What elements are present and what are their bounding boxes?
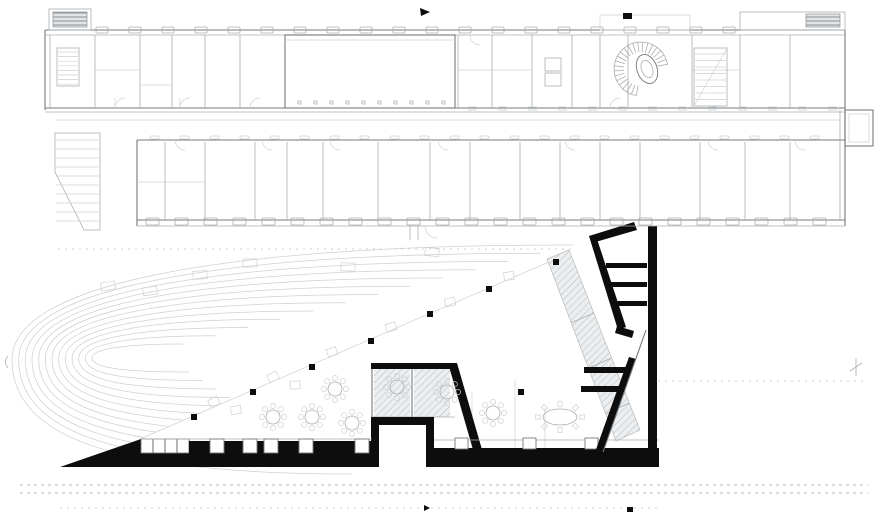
- spiral-tread: [627, 83, 632, 92]
- exterior-stair-outline: [55, 133, 100, 230]
- courtyard-lower-ticks: [390, 136, 399, 139]
- hall-column-tick: [298, 101, 301, 104]
- stair-flight-bar: [606, 263, 647, 268]
- south-facade-windows: [552, 218, 565, 225]
- south-facade-windows: [349, 218, 362, 225]
- hall-column-tick: [346, 101, 349, 104]
- spiral-tread: [631, 85, 635, 94]
- floor-plan-drawing: [0, 0, 882, 526]
- spiral-tread: [657, 59, 666, 63]
- spiral-tread: [624, 48, 630, 56]
- south-facade-windows: [610, 218, 623, 225]
- south-facade-windows: [494, 218, 507, 225]
- centerline-mark-right-icon: [850, 358, 862, 376]
- spiral-core-outer: [632, 51, 661, 86]
- column: [518, 389, 524, 395]
- spiral-tread: [642, 42, 643, 52]
- courtyard-lower-ticks: [690, 136, 699, 139]
- south-facade-windows: [465, 218, 478, 225]
- hall-column-ticks: [298, 101, 445, 104]
- south-facade-windows: [755, 218, 768, 225]
- north-arrow-icon: [420, 8, 430, 16]
- courtyard-lower-ticks: [630, 136, 639, 139]
- hall-column-tick: [362, 101, 365, 104]
- column: [250, 389, 256, 395]
- spiral-tread: [654, 51, 661, 58]
- site-marker-icon-1: [424, 505, 430, 511]
- wall-opening: [264, 439, 278, 453]
- spiral-tread: [633, 43, 636, 53]
- spiral-tread: [645, 43, 648, 53]
- courtyard-lower-ticks: [540, 136, 549, 139]
- hall-column-tick: [378, 101, 381, 104]
- courtyard-lower-ticks: [180, 136, 189, 139]
- south-facade-windows: [291, 218, 304, 225]
- wall-opening: [355, 439, 369, 453]
- east-skylight-hatch: [806, 14, 840, 27]
- south-facade-windows: [378, 218, 391, 225]
- wc-stall-1: [374, 369, 410, 417]
- stair-flight-bar: [614, 301, 647, 306]
- courtyard-lower-ticks: [450, 136, 459, 139]
- south-facade-windows: [784, 218, 797, 225]
- courtyard-lower-ticks: [270, 136, 279, 139]
- column: [553, 259, 559, 265]
- south-facade-windows: [407, 218, 420, 225]
- south-facade-windows: [146, 218, 159, 225]
- courtyard-lower-ticks: [420, 136, 429, 139]
- wc-stall-2: [414, 369, 450, 417]
- wall-wedge: [60, 439, 141, 467]
- floor-plan-canvas: [0, 0, 882, 526]
- column: [427, 311, 433, 317]
- spiral-tread: [628, 45, 633, 54]
- south-facade-windows: [523, 218, 536, 225]
- spiral-tread: [636, 86, 638, 96]
- notch-right-wall: [426, 425, 434, 467]
- south-facade-windows: [175, 218, 188, 225]
- wall-opening: [299, 439, 313, 453]
- spiral-tread: [658, 64, 668, 66]
- east-main-wall: [648, 226, 657, 467]
- south-facade-windows: [320, 218, 333, 225]
- column: [368, 338, 374, 344]
- south-partitions: [165, 142, 790, 220]
- stair-flight-bar: [581, 386, 624, 392]
- courtyard-lower-ticks: [360, 136, 369, 139]
- great-hall: [285, 35, 455, 108]
- stair-flight-bar: [610, 282, 647, 287]
- wall-opening: [585, 438, 598, 449]
- south-facade-windows: [726, 218, 739, 225]
- courtyard-lower-ticks: [240, 136, 249, 139]
- courtyard-lower-ticks: [150, 136, 159, 139]
- south-facade-windows: [813, 218, 826, 225]
- hall-column-tick: [394, 101, 397, 104]
- wall-opening: [243, 439, 257, 453]
- courtyard-lower-ticks: [750, 136, 759, 139]
- courtyard-lower-ticks: [780, 136, 789, 139]
- courtyard-lower-ticks: [210, 136, 219, 139]
- window-rows-layer: [96, 27, 837, 225]
- hall-column-tick: [442, 101, 445, 104]
- spiral-tread: [655, 55, 664, 60]
- east-bay-window-inner: [849, 114, 869, 142]
- notch-top-wall: [371, 417, 434, 425]
- spiral-tread: [623, 82, 630, 89]
- stair-pavilion-outline: [600, 15, 690, 30]
- contour-bench: [100, 281, 115, 291]
- wall-opening: [523, 438, 536, 449]
- roof-marker-icon: [623, 13, 632, 19]
- south-facade-windows: [233, 218, 246, 225]
- spiral-tread: [638, 42, 639, 52]
- south-facade-windows: [668, 218, 681, 225]
- spiral-tread: [617, 56, 626, 61]
- spiral-tread: [651, 47, 657, 55]
- spiral-stair: [614, 42, 668, 96]
- south-facade-windows: [639, 218, 652, 225]
- courtyard-lower-ticks: [480, 136, 489, 139]
- west-skylight-hatch: [53, 12, 87, 27]
- courtyard-lower-ticks: [720, 136, 729, 139]
- spiral-tread: [614, 70, 624, 71]
- wall-opening: [210, 439, 224, 453]
- courtyard-lower-ticks: [300, 136, 309, 139]
- column: [309, 364, 315, 370]
- west-stair-outline: [57, 48, 79, 86]
- contour-bench: [341, 263, 355, 271]
- fixtures: [410, 58, 561, 240]
- courtyard-lower-ticks: [330, 136, 339, 139]
- east-stair-diagonal: [694, 48, 727, 106]
- hall-column-tick: [314, 101, 317, 104]
- upper-building-layer: [45, 9, 873, 240]
- stair-treads-layer: [56, 52, 726, 221]
- spiral-tread: [615, 73, 625, 76]
- spiral-tread: [617, 76, 626, 80]
- courtyard-lower-ticks: [810, 136, 819, 139]
- courtyard-lower-ticks: [600, 136, 609, 139]
- spiral-tread: [614, 66, 624, 67]
- spiral-tread: [648, 45, 652, 54]
- north-partitions: [95, 35, 790, 108]
- courtyard-lower-ticks: [660, 136, 669, 139]
- column: [486, 286, 492, 292]
- spiral-tread: [615, 61, 625, 64]
- wall-under-glazing: [141, 453, 189, 467]
- wall-opening: [455, 438, 468, 449]
- notch-left-wall: [371, 425, 379, 467]
- hall-column-tick: [410, 101, 413, 104]
- south-wall-right: [434, 448, 659, 467]
- contour-bench-layer: [100, 247, 439, 295]
- room-subdivisions: [95, 70, 740, 182]
- south-facade-windows: [204, 218, 217, 225]
- courtyard-lower-ticks: [510, 136, 519, 139]
- spiral-tread: [620, 52, 628, 58]
- centerline-mark-left-icon: [6, 356, 9, 368]
- spiral-tread: [619, 79, 627, 85]
- column: [191, 414, 197, 420]
- wc-top-wall: [371, 363, 452, 369]
- site-marker-icon-2: [627, 507, 633, 512]
- south-facade-windows: [436, 218, 449, 225]
- hall-column-tick: [330, 101, 333, 104]
- south-facade-windows: [262, 218, 275, 225]
- stair-flight-bar: [584, 367, 628, 373]
- south-facade-windows: [581, 218, 594, 225]
- hall-column-tick: [426, 101, 429, 104]
- courtyard-lower-ticks: [570, 136, 579, 139]
- south-facade-windows: [697, 218, 710, 225]
